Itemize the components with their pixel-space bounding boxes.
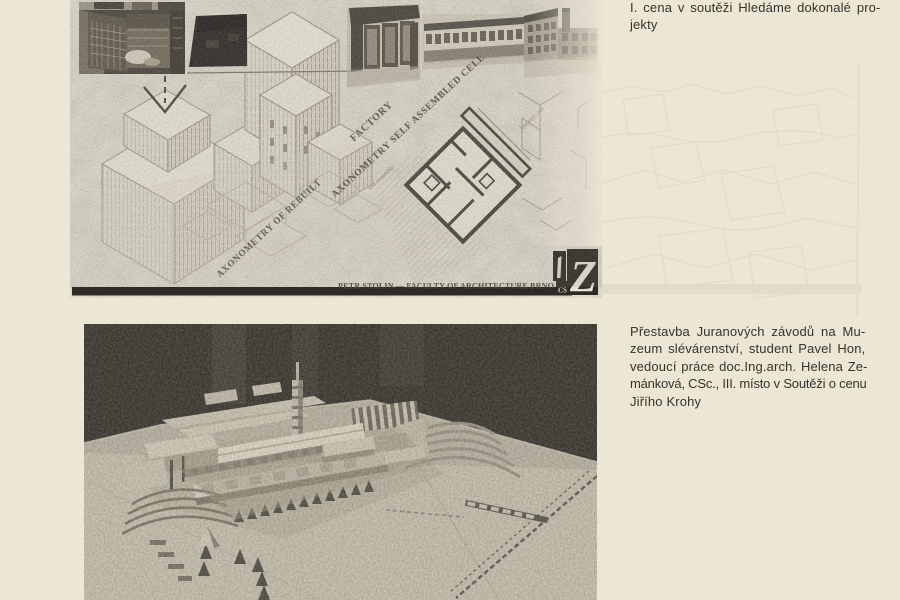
svg-text:CS: CS — [558, 287, 567, 295]
